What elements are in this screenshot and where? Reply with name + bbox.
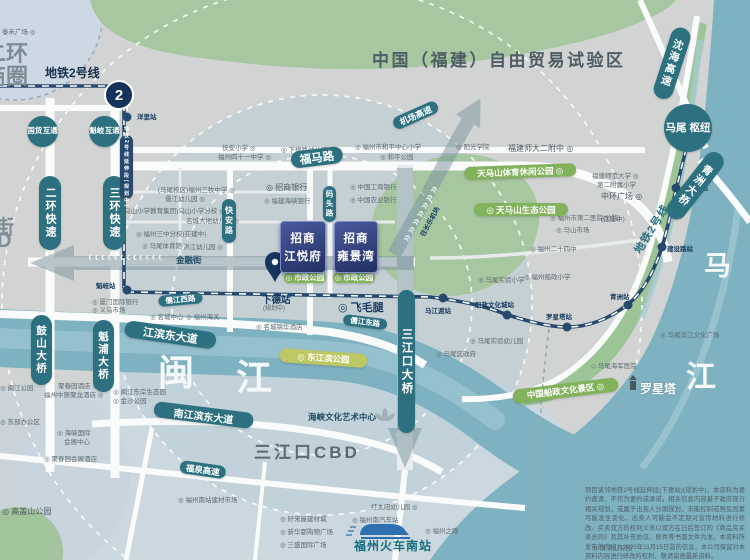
project-name-line: 雍景湾: [337, 248, 375, 264]
qingzhou-bridge: 青洲大桥: [663, 148, 728, 223]
map-label: 会展中心: [64, 436, 90, 446]
map-label: ◎ 新华都购物广场: [280, 526, 333, 536]
chuanzheng-culture-area: 中国船政文化景区 ◎: [512, 377, 619, 404]
map-label: 青洲站: [610, 291, 630, 301]
map-label: ◎ 阳光学院: [456, 141, 489, 151]
map-label: 中环广场 ◎: [601, 191, 642, 202]
sanjiangkou-bridge: 三江口大桥: [398, 290, 415, 433]
map-label: ◎ 马尾滨江文化广场: [660, 329, 719, 339]
map-label: ◎ 福建海峡银行: [264, 195, 310, 205]
map-label: ◎ 和平公园: [380, 151, 413, 161]
map-label: 海峡文化艺术中心: [308, 411, 376, 423]
mawei-hub: 马尾枢纽: [664, 104, 712, 152]
map-label: ◎ 高盖山公园: [2, 506, 51, 517]
real-estate-location-map: 泰禾广场 ◎快安小学 ◎福州四十一中学 ◎◎ 下德路幼儿园◎ 福州市和平中心小学…: [0, 0, 750, 560]
metro-line2-label: 地铁2号线: [45, 64, 100, 81]
map-label: 福州中庚聚龙酒店 ◎: [44, 389, 103, 399]
ma-river-name: 马: [704, 244, 731, 283]
sanjiangkou-cbd: 三江口CBD: [254, 438, 360, 463]
map-label: 罗星塔: [640, 380, 676, 397]
project-box-yongjingwan: 招商雍景湾: [334, 221, 378, 273]
map-label: 泰禾广场 ◎: [2, 26, 35, 36]
map-label: 洪江幼儿园 ◎: [183, 241, 223, 251]
map-label: ◎ 福州之眼: [425, 525, 458, 535]
guohuo-interchange: 国货互通: [27, 116, 58, 147]
map-label: ◎ 马尾区政府: [436, 348, 476, 358]
erhuan-business-area: 商圈: [0, 59, 28, 91]
map-label: 建设路站: [667, 243, 693, 253]
map-label: ◎ 马尾实验小学: [478, 274, 524, 284]
map-label: 儒江幼儿园 ◎: [165, 193, 205, 203]
tianmashan-sports-park: 天马山体育休闲公园 ◎: [464, 163, 576, 180]
map-label: ‹‹‹‹‹‹‹‹‹‹‹‹: [88, 249, 164, 264]
road-kuaian-road: 快安路: [222, 199, 236, 243]
map-label: 金融街: [176, 254, 202, 266]
project-name-line: 江悦府: [284, 248, 322, 264]
map-label: ◎ 飞毛腿: [338, 299, 384, 315]
map-label: ◎ 中国工商银行: [350, 181, 396, 191]
map-label: 魁岐站: [96, 280, 116, 290]
map-label: 福州四十一中学 ◎: [218, 151, 271, 161]
map-labels-layer: 泰禾广场 ◎快安小学 ◎福州四十一中学 ◎◎ 下德路幼儿园◎ 福州市和平中心小学…: [0, 0, 750, 560]
map-label: ◎ 招商银行: [266, 182, 307, 193]
map-label: ◎ 马尾实验幼儿园: [470, 335, 523, 345]
map-label: 福州火车南站: [354, 537, 432, 554]
road-erhuan-express: 二环快速: [39, 176, 61, 250]
metro-extension-tag: 地铁2号线延伸段(规划中): [120, 135, 133, 199]
map-label: 洋里站: [137, 111, 157, 121]
tianmashan-eco-park: ◎ 天马山生态公园: [474, 203, 568, 216]
map-label: ◎ 马山市场: [556, 224, 589, 234]
map-label: ◎ 义乌市场: [92, 304, 125, 314]
map-label: (乌山小学教育集团)乌山小学分校 ◎: [122, 205, 225, 215]
kuiqi-interchange: 魁岐互通: [89, 116, 120, 147]
kuipu-bridge: 魁浦大桥: [93, 320, 114, 392]
municipal-park: ◎ 市政公园: [284, 272, 326, 283]
road-rujiang-east: 儒江东路: [343, 314, 388, 330]
municipal-park: ◎ 市政公园: [333, 272, 375, 283]
map-label: ◎ 聚春园会展酒店: [44, 453, 97, 463]
map-label: ◎ 东部办公区: [0, 416, 40, 426]
map-label: ◎ 中国农业银行: [350, 194, 396, 204]
map-label: ◎ 福州船政小学: [524, 271, 570, 281]
map-label: 红太阳幼儿园 ◎: [371, 501, 417, 511]
map-label: ◎ 福州三中分校(在建中): [136, 228, 206, 238]
map-label: 罗星塔站: [546, 311, 572, 321]
road-rujiang-west: 儒江西路: [158, 292, 203, 307]
map-label: 第二附属小学: [597, 179, 636, 189]
map-label: ◎ 名城中心: [150, 311, 183, 321]
metro-line2-badge: 2: [104, 80, 134, 110]
map-label: (规划中): [263, 303, 285, 312]
disclaimer-text: 项目紧邻地铁2号线延伸段(下德站)(规划中)，本资料为要约邀请，不作为要约或承诺…: [585, 486, 745, 560]
map-label: ◎ 福州二十四中: [530, 243, 576, 253]
road-fuquan-expressway: 福泉高速: [179, 460, 226, 479]
road-airport-expressway: 机场高速: [391, 99, 440, 130]
ma-river-name: 江: [686, 352, 716, 396]
project-box-jiangyuefu: 招商江悦府: [280, 221, 326, 273]
map-label: ◎ 好来屋建材城: [280, 513, 326, 523]
road-shenhai-expressway: 沈海高速: [651, 25, 693, 102]
map-label: 马江渡站: [425, 305, 451, 315]
min-river-name: 江: [236, 349, 272, 401]
ftz-title: 中国（福建）自由贸易试验区: [372, 46, 626, 71]
map-label: ◎ 福州南站建材市场: [178, 494, 237, 504]
road-south-jiangbin-ave: 南江滨东大道: [153, 401, 254, 429]
map-label: 船政文化城站: [475, 299, 514, 309]
map-label: ◎ 福州南汽车站: [352, 514, 398, 524]
east-jiangbin-park: ◎ 东江滨公园: [279, 348, 368, 368]
road-matou-road: 码头路: [323, 186, 336, 222]
map-label: 福建师大二附中 ◎: [508, 143, 573, 154]
gushan-bridge: 鼓山大桥: [31, 315, 52, 385]
map-label: ◇ 马尾海军医院: [591, 360, 637, 370]
project-name-line: 招商: [291, 230, 316, 246]
map-label: ◎ 福州海关: [186, 311, 219, 321]
map-label: ◎ 闽江公园: [0, 382, 33, 392]
map-label: ◎ 三盛国际广场: [280, 539, 326, 549]
map-label: ◎ 名城锦华酒店: [256, 321, 302, 331]
cbd-clip-label: D: [0, 230, 11, 253]
project-name-line: 招商: [344, 230, 369, 246]
map-label: ◎ 金沙公园: [113, 395, 146, 405]
map-label: ◎ 福州市和平中心小学: [355, 141, 421, 151]
